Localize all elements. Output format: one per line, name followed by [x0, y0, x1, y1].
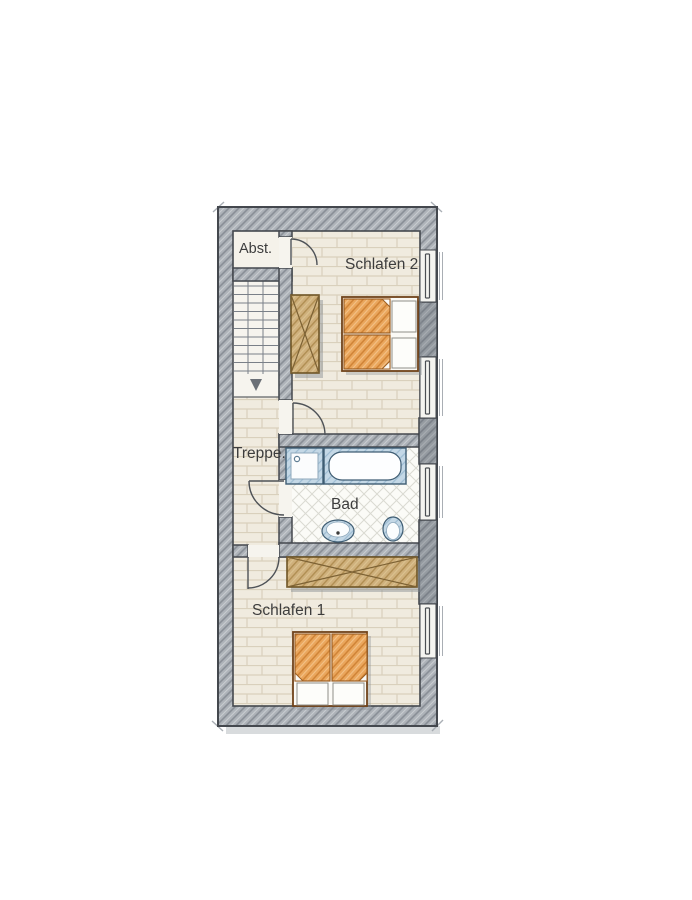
threshold-bedroom2 [279, 400, 292, 434]
washbasin [322, 520, 354, 542]
room-label-bedroom1: Schlafen 1 [252, 602, 325, 619]
bathtub [324, 448, 406, 484]
shower [286, 448, 323, 484]
toilet [383, 517, 403, 541]
window-sill [440, 466, 443, 518]
threshold-bathroom [279, 480, 292, 517]
pillow-right [333, 683, 364, 705]
window-sill [440, 252, 443, 300]
floor-plan-canvas: Abst. Schlafen 2 Treppe. Bad Schlafen 1 [0, 0, 692, 900]
window-4 [420, 604, 443, 658]
washbasin-drain [336, 531, 339, 534]
shower-drain [294, 456, 299, 461]
mattress-bottom [344, 335, 390, 369]
double-bed-bedroom1 [293, 632, 371, 710]
wall-bathroom-bottom [279, 543, 420, 557]
window-opening [420, 250, 436, 302]
mattress-left [295, 634, 330, 681]
wall-bathroom-top [279, 434, 420, 447]
building-shadow [226, 726, 440, 734]
pillow-left [297, 683, 328, 705]
window-opening [420, 464, 436, 520]
window-3 [420, 464, 443, 520]
page: Abst. Schlafen 2 Treppe. Bad Schlafen 1 [0, 0, 692, 900]
window-2 [420, 357, 443, 418]
bathtub-basin [329, 452, 401, 480]
wall-storage-jamb [279, 231, 292, 237]
pillow-bottom [392, 338, 416, 368]
pier-2-shade [419, 418, 437, 464]
mattress-right [332, 634, 367, 681]
toilet-inner [387, 523, 400, 540]
wardrobe-bedroom2 [291, 295, 323, 378]
threshold-storage [279, 237, 292, 268]
washbasin-inner [327, 522, 350, 537]
window-opening [420, 357, 436, 418]
wall-hall-bedroom2 [279, 268, 292, 400]
pillow-top [392, 301, 416, 332]
double-bed-bedroom2 [342, 297, 422, 375]
pier-3-shade [419, 520, 437, 604]
room-label-bathroom: Bad [331, 496, 359, 513]
room-label-stairs: Treppe. [233, 445, 286, 462]
window-sill [440, 359, 443, 416]
window-sill [440, 606, 443, 656]
room-label-storage: Abst. [239, 241, 272, 257]
window-opening [420, 604, 436, 658]
threshold-bedroom1 [248, 545, 279, 557]
wall-bedroom1-stub [233, 545, 248, 557]
mattress-top [344, 299, 390, 333]
room-label-bedroom2: Schlafen 2 [345, 256, 418, 273]
wardrobe-bedroom1 [287, 557, 421, 592]
window-1 [420, 250, 443, 302]
